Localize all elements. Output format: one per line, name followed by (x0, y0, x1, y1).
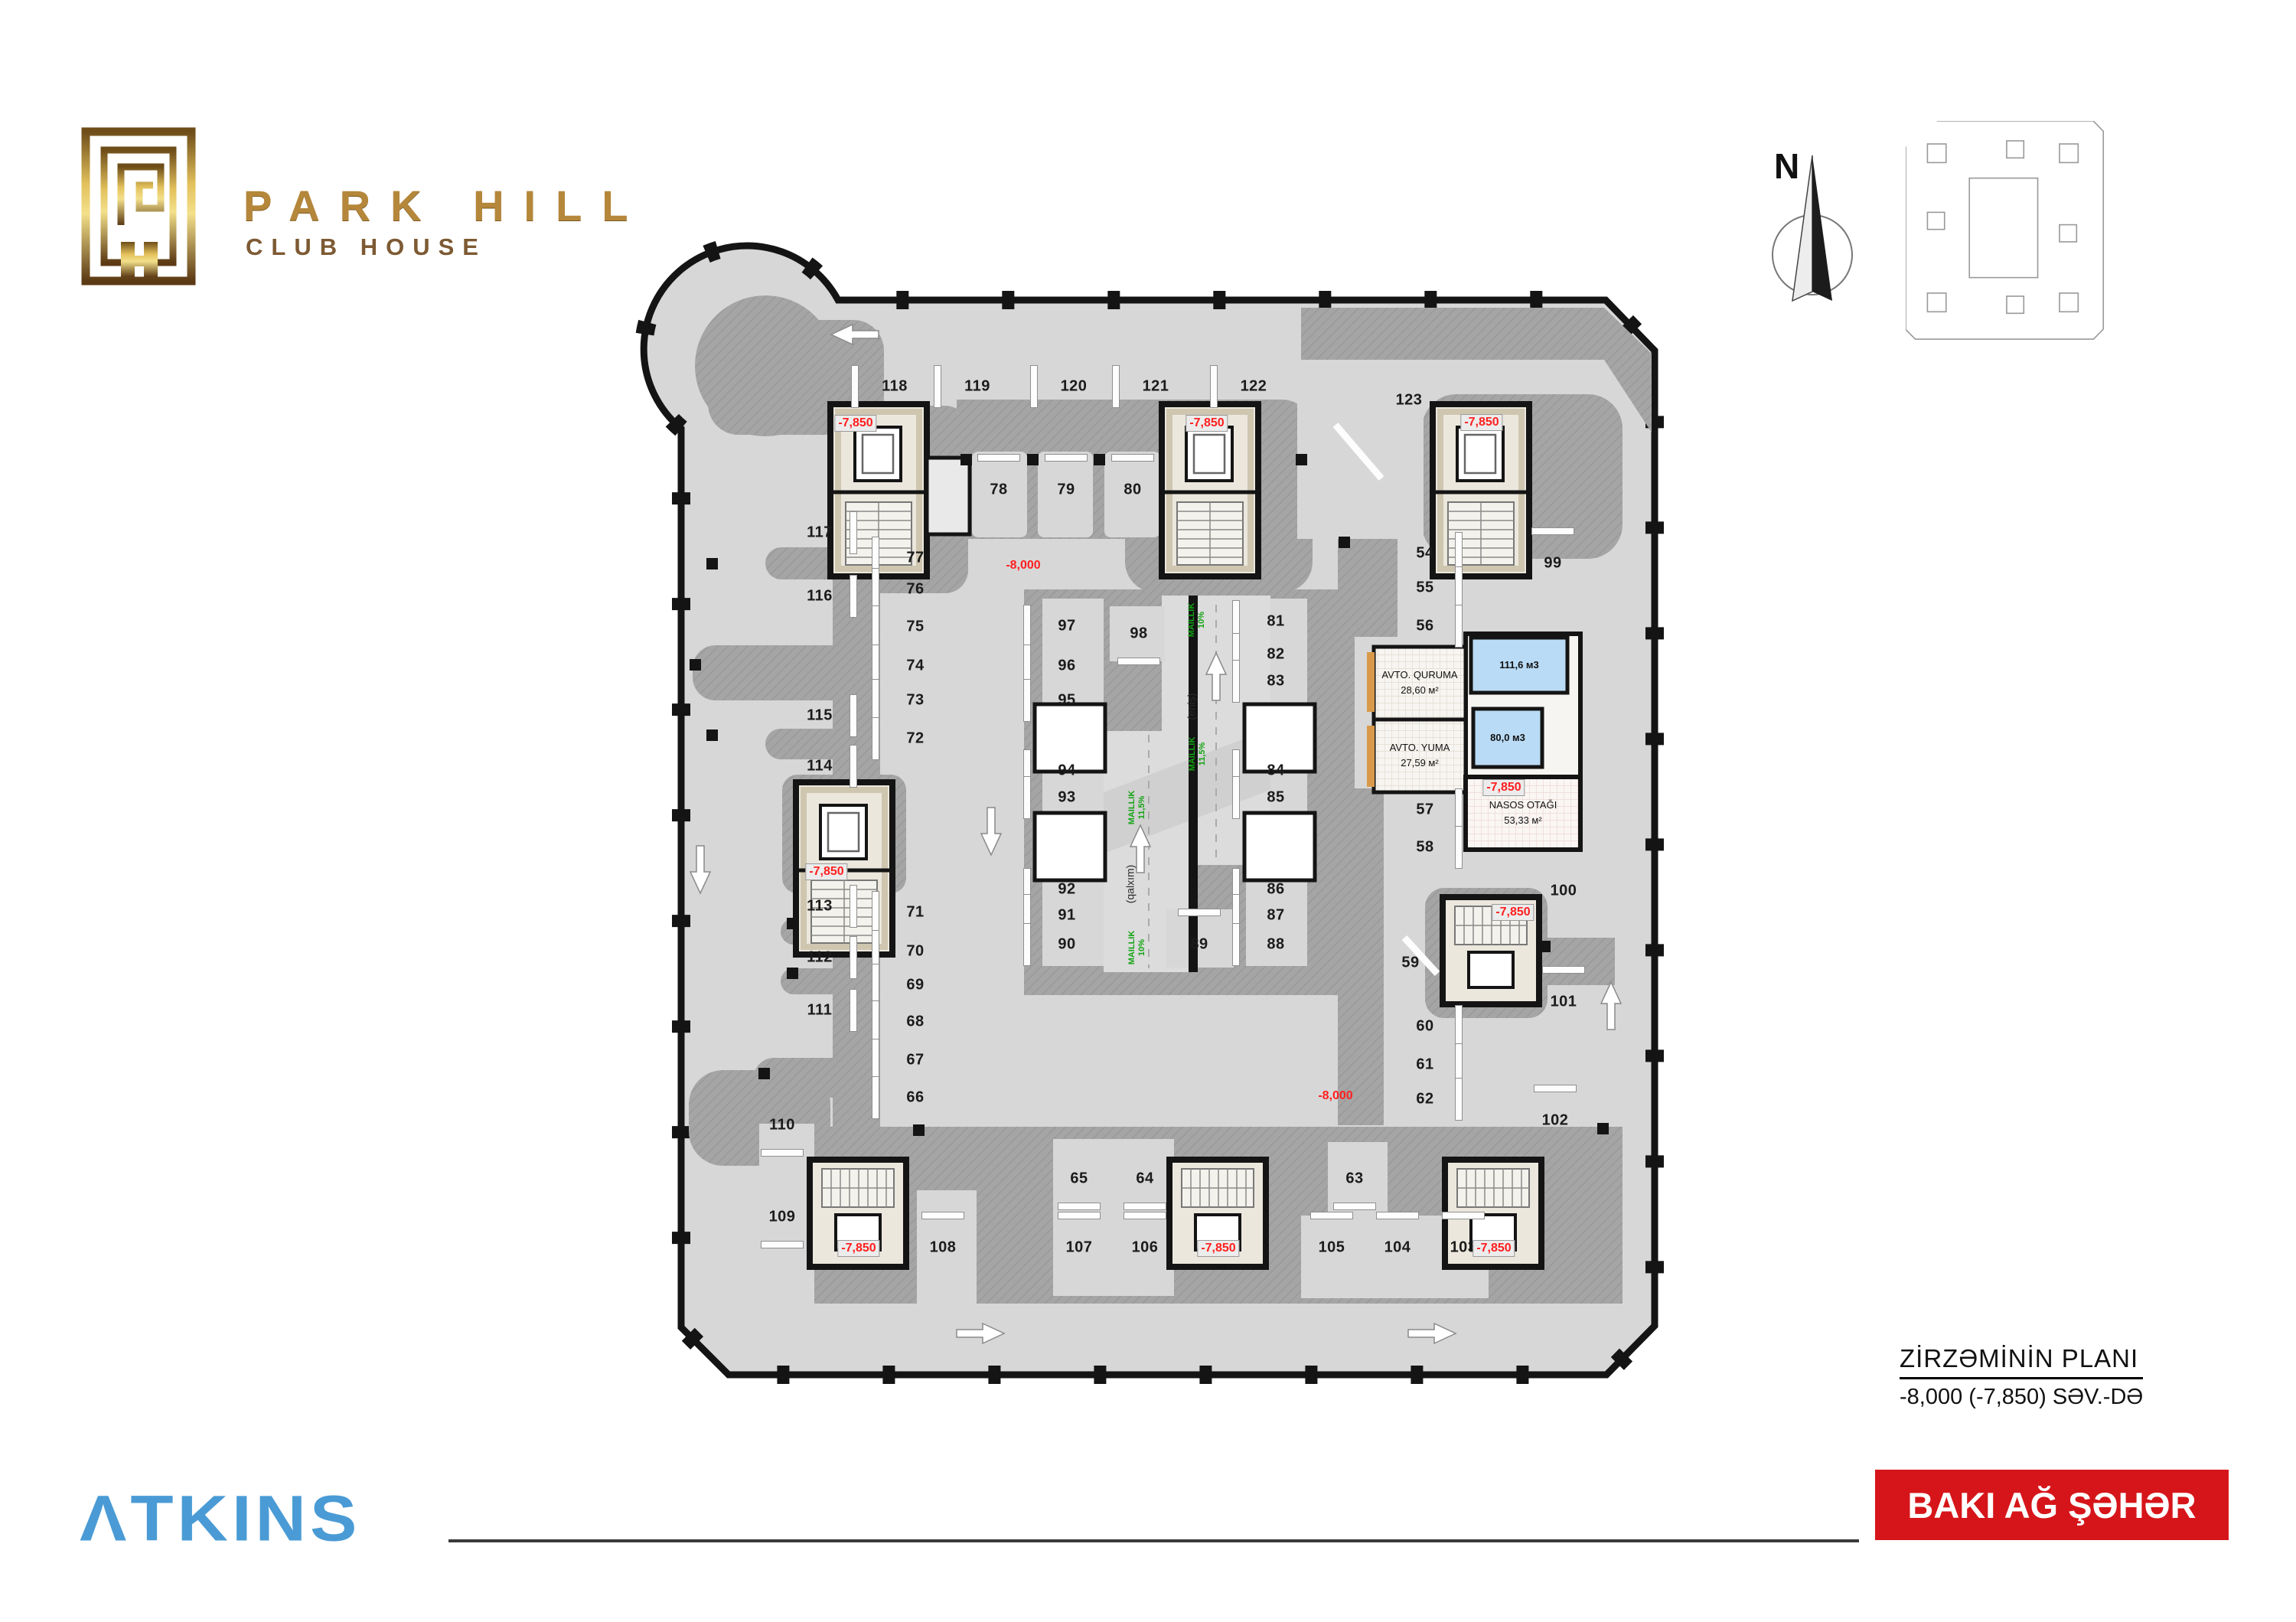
door-strip (1367, 726, 1375, 787)
water-tank (1471, 638, 1567, 693)
door-strip (1367, 652, 1375, 712)
page-subtitle: -8,000 (-7,850) SƏV.-DƏ (1900, 1385, 2143, 1410)
atkins-logo: ΛTKINS (80, 1482, 360, 1556)
page-title: ZİRZƏMİNİN PLANI (1900, 1344, 2143, 1379)
drawing-sheet: PARK HILL CLUB HOUSE N (0, 0, 2296, 1622)
water-tank (1473, 709, 1542, 767)
footer-rule (448, 1539, 1859, 1542)
title-block: ZİRZƏMİNİN PLANI -8,000 (-7,850) SƏV.-DƏ (1900, 1344, 2143, 1410)
project-banner: BAKI AĞ ŞƏHƏR (1875, 1470, 2229, 1540)
